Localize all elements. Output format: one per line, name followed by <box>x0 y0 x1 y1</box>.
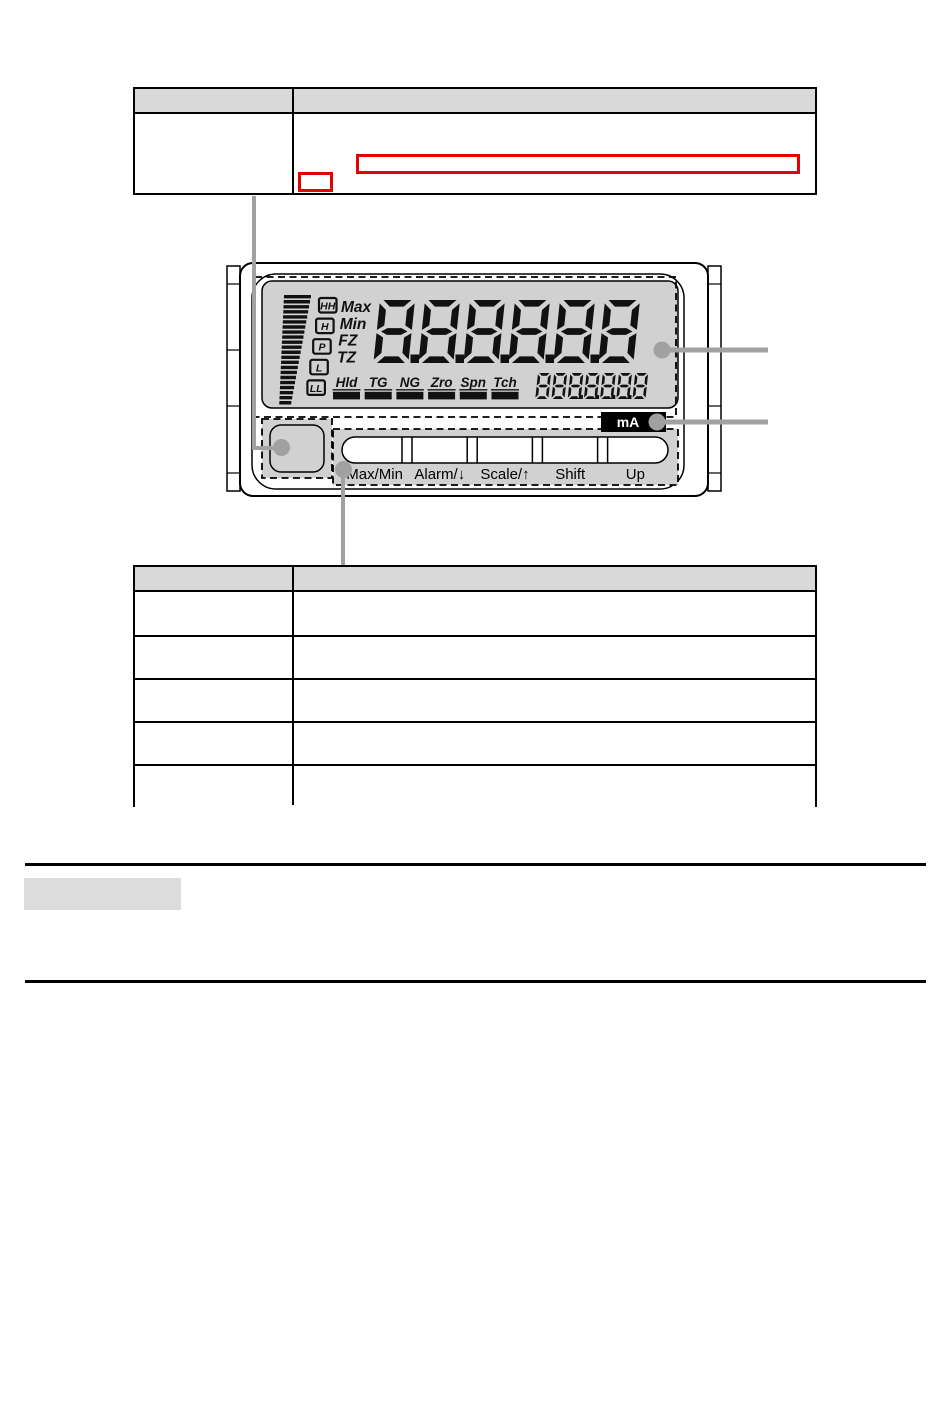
decimal-point <box>411 355 420 364</box>
bargraph-segment <box>279 396 292 399</box>
highlight-box-small <box>298 172 333 192</box>
decimal-point <box>628 395 632 399</box>
setpoint-indicator-label: H <box>321 321 329 333</box>
manual-page: HHHPLLL MaxMinFZTZ HldTGNGZroSpnTch Max/… <box>0 0 950 1408</box>
status-indicator-bar <box>333 392 360 400</box>
key-label: Scale/↑ <box>480 466 529 483</box>
table-column-divider <box>292 89 294 193</box>
section-rule-bottom <box>25 980 926 983</box>
decimal-point <box>456 355 465 364</box>
table-row <box>135 635 815 678</box>
bargraph-segment <box>280 391 294 394</box>
decimal-point <box>611 395 615 399</box>
bargraph-segment <box>282 335 303 338</box>
key-label: Up <box>626 466 645 483</box>
bargraph-segment <box>279 401 291 404</box>
bargraph-segment <box>281 361 299 364</box>
key-label: Max/Min <box>346 466 403 483</box>
bargraph-segment <box>281 356 300 359</box>
table-header-row <box>135 89 815 114</box>
bargraph-segment <box>284 300 310 303</box>
setpoint-indicator-label: P <box>318 342 326 354</box>
table-row <box>135 678 815 721</box>
status-indicator-bar <box>365 392 392 400</box>
unit-label: mA <box>617 414 640 430</box>
status-indicator-bar <box>428 392 455 400</box>
section-heading-box <box>24 878 181 910</box>
decimal-point <box>591 355 600 364</box>
right-mounting-strip <box>708 266 721 491</box>
status-indicator-bar <box>492 392 519 400</box>
decimal-point <box>579 395 583 399</box>
mode-indicator-label: Min <box>340 316 367 333</box>
bargraph-segment <box>282 330 304 333</box>
bargraph-segment <box>282 340 303 343</box>
bargraph-segment <box>284 295 311 298</box>
decimal-point <box>546 355 555 364</box>
callout-dot-display <box>654 342 671 359</box>
decimal-point <box>501 355 510 364</box>
mode-indicator-label: Max <box>341 299 373 316</box>
status-indicator-bar <box>396 392 423 400</box>
left-mounting-strip <box>227 266 240 491</box>
key-label: Alarm/↓ <box>414 466 465 483</box>
bargraph-segment <box>280 386 294 389</box>
setpoint-indicator-label: HH <box>320 301 336 313</box>
table-row <box>135 592 815 635</box>
bargraph-segment <box>283 315 307 318</box>
bargraph-segment <box>280 381 295 384</box>
section-rule-top <box>25 863 926 866</box>
status-indicator-bar <box>460 392 487 400</box>
table-column-divider <box>292 567 294 805</box>
status-indicator-label: TG <box>369 375 388 390</box>
decimal-point <box>595 395 599 399</box>
mode-indicator-label: FZ <box>338 333 357 350</box>
bargraph-segment <box>281 371 297 374</box>
setpoint-indicator-label: LL <box>310 383 323 395</box>
bargraph-segment <box>283 325 306 328</box>
mode-indicator-label: TZ <box>337 349 356 366</box>
bargraph-segment <box>282 346 302 349</box>
panel-meter-illustration: HHHPLLL MaxMinFZTZ HldTGNGZroSpnTch Max/… <box>220 250 780 510</box>
status-indicator-label: Hld <box>336 375 359 390</box>
table-row <box>135 721 815 764</box>
status-indicator-label: Tch <box>493 375 517 390</box>
callout-line-keys-vertical <box>341 469 346 565</box>
bargraph-segment <box>283 305 309 308</box>
status-indicator-label: Zro <box>430 375 453 390</box>
bargraph-segment <box>281 351 300 354</box>
status-indicator-label: Spn <box>461 375 487 390</box>
callout-dot-front-button <box>273 439 290 456</box>
bargraph-segment <box>281 366 298 369</box>
table-header-row <box>135 567 815 592</box>
status-indicator-label: NG <box>400 375 421 390</box>
callout-line-front-button-vertical <box>252 196 257 450</box>
bargraph-segment <box>280 376 296 379</box>
key-strip <box>342 437 668 463</box>
table-row <box>135 764 815 807</box>
bargraph-segment <box>283 320 307 323</box>
table-body <box>135 592 815 807</box>
highlight-box-large <box>356 154 800 174</box>
callout-table-bottom <box>133 565 817 807</box>
setpoint-indicator-label: L <box>316 362 322 374</box>
bargraph-segment <box>283 310 308 313</box>
callout-dot-unit <box>649 414 666 431</box>
callout-table-top <box>133 87 817 195</box>
key-label: Shift <box>555 466 586 483</box>
